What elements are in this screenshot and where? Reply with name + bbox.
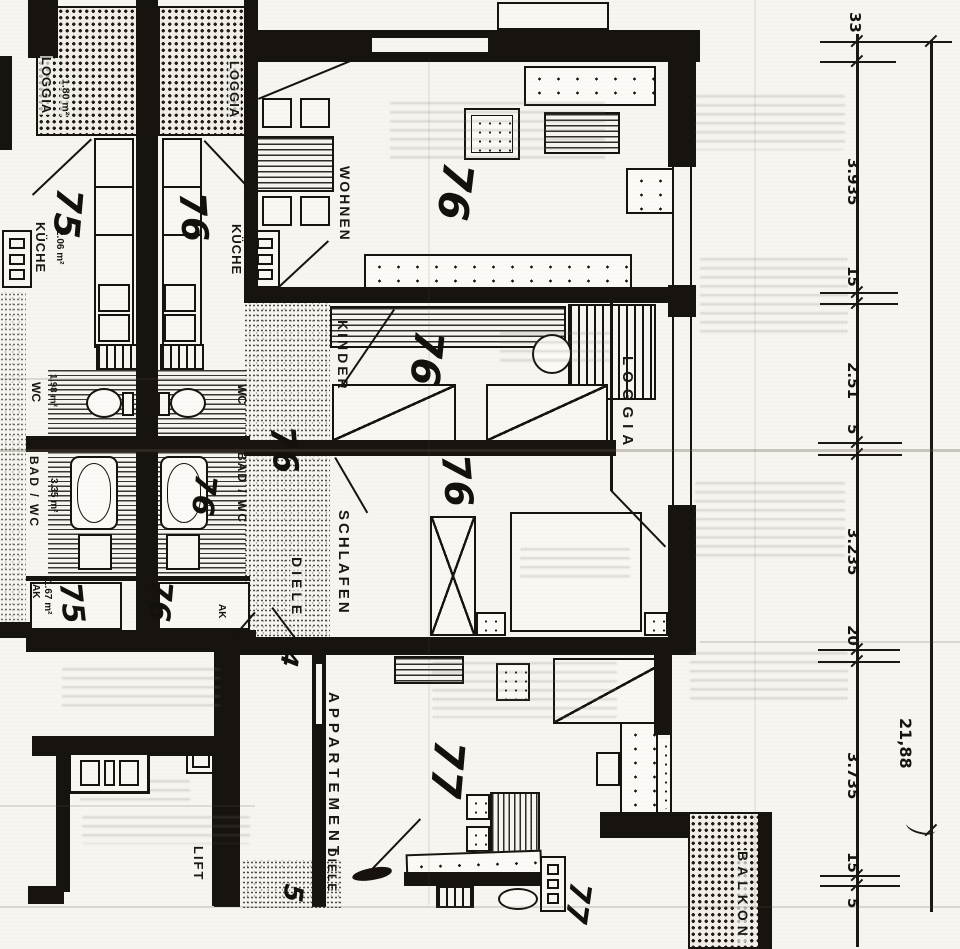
dim-label: 3.935 bbox=[844, 158, 862, 205]
window-icon bbox=[2, 230, 32, 288]
washbasin-icon bbox=[78, 534, 112, 570]
room-label-bad-left: BAD / WC bbox=[28, 456, 40, 528]
wall bbox=[244, 287, 672, 303]
exterior-ground-texture bbox=[0, 292, 26, 622]
area-label-bad-left: 3.35 m² bbox=[48, 478, 58, 512]
handwritten-unit-76: 76 bbox=[144, 579, 175, 623]
room-label-kinder: KINDER bbox=[336, 320, 350, 392]
dining-table-icon bbox=[256, 136, 334, 192]
wall bbox=[758, 812, 772, 949]
scan-crease bbox=[0, 449, 960, 452]
scan-crease bbox=[0, 805, 255, 807]
wall bbox=[0, 622, 30, 638]
wall bbox=[600, 812, 690, 838]
ghost-text-patch bbox=[695, 482, 845, 560]
handwritten-unit-76: 76 bbox=[174, 191, 210, 243]
handwritten-unit-76: 76 bbox=[188, 473, 219, 517]
dimension-tick bbox=[820, 875, 900, 877]
scan-streak bbox=[428, 60, 430, 905]
door-swing bbox=[272, 240, 329, 293]
floor-plan-scan: LOGGIA 1.80 m² LOGGIA KÜCHE 2.06 m² KÜCH… bbox=[0, 0, 960, 949]
toilet-tank bbox=[122, 392, 134, 416]
chair-icon bbox=[300, 196, 330, 226]
toilet-tank bbox=[158, 392, 170, 416]
wall bbox=[0, 56, 12, 150]
door-frame bbox=[316, 664, 322, 724]
counter-divider bbox=[96, 186, 132, 188]
room-label-lift: LIFT bbox=[192, 846, 205, 881]
room-label-loggia-left: LOGGIA bbox=[40, 56, 53, 115]
bathtub-icon bbox=[70, 456, 118, 530]
party-wall bbox=[136, 0, 158, 650]
dim-label: 15 bbox=[844, 266, 862, 287]
chair-icon bbox=[262, 98, 292, 128]
handwritten-unit-75: 75 bbox=[48, 187, 85, 240]
handwritten-unit-77: 77 bbox=[426, 738, 469, 800]
handwritten-unit-76: 76 bbox=[405, 328, 447, 387]
dim-label: 2.51 bbox=[844, 362, 862, 399]
handwritten-unit-76: 76 bbox=[433, 160, 478, 223]
dim-label: 15 bbox=[844, 852, 862, 873]
counter-divider bbox=[96, 234, 132, 236]
dim-label: 33 bbox=[846, 12, 864, 33]
dimension-tick bbox=[820, 303, 898, 305]
area-label-ak-left: 1.67 m² bbox=[42, 580, 52, 614]
dimension-tick bbox=[818, 442, 902, 444]
dimension-tick bbox=[818, 661, 900, 663]
sofa-icon bbox=[364, 254, 632, 290]
room-label-wc-left: WC bbox=[30, 382, 42, 402]
ghost-text-patch bbox=[390, 102, 605, 160]
ghost-text-patch bbox=[700, 258, 848, 338]
chair-icon bbox=[300, 98, 330, 128]
room-label-diele-unten: DIELE bbox=[326, 848, 338, 893]
washbasin-icon bbox=[166, 534, 200, 570]
room-label-wc-right: WC bbox=[236, 384, 248, 404]
chair-icon bbox=[466, 826, 490, 852]
exterior-wall-right bbox=[668, 505, 696, 640]
bed-icon bbox=[486, 384, 608, 442]
scan-crease bbox=[700, 641, 960, 643]
dimension-tick bbox=[818, 454, 902, 456]
ghost-text-patch bbox=[432, 662, 617, 718]
counter-divider bbox=[164, 186, 200, 188]
upper-structure bbox=[497, 2, 609, 30]
room-label-ak-left: AK bbox=[30, 584, 40, 598]
dimension-tick bbox=[820, 292, 898, 294]
kitchen-appliance bbox=[164, 314, 196, 342]
handwritten-measure-4: 4 bbox=[277, 648, 301, 668]
lift-wall bbox=[28, 886, 64, 904]
wall bbox=[26, 576, 250, 581]
room-label-wohnen: WOHNEN bbox=[338, 166, 352, 242]
chamfer-line bbox=[258, 60, 351, 100]
toilet-icon bbox=[170, 388, 206, 418]
room-label-ak-right: AK bbox=[216, 604, 226, 618]
room-label-kueche-right: KÜCHE bbox=[230, 224, 243, 275]
window-detail bbox=[658, 739, 670, 809]
kitchen-appliance bbox=[98, 284, 130, 312]
bed-icon bbox=[332, 384, 456, 442]
handwritten-unit-76: 76 bbox=[438, 453, 477, 509]
sink-unit bbox=[160, 344, 204, 370]
handwritten-unit-77: 77 bbox=[561, 880, 594, 925]
loggia-edge bbox=[610, 303, 613, 491]
sofa-icon bbox=[524, 66, 656, 106]
exterior-wall-right bbox=[668, 55, 696, 167]
room-label-appartement: APPARTEMENT bbox=[326, 692, 341, 860]
area-label-loggia-left: 1.80 m² bbox=[60, 78, 71, 116]
wall bbox=[654, 655, 672, 735]
wall bbox=[28, 0, 58, 58]
dimension-line-outer bbox=[930, 40, 933, 912]
scan-crease bbox=[0, 378, 252, 380]
dimension-tick bbox=[818, 649, 900, 651]
window-strip bbox=[372, 36, 488, 54]
door-swing bbox=[334, 457, 368, 513]
nightstand-icon bbox=[476, 612, 506, 636]
room-label-loggia-kinder: LOGGIA bbox=[620, 356, 635, 451]
side-table-icon bbox=[596, 752, 620, 786]
window-strip bbox=[672, 317, 692, 505]
kitchen-appliance bbox=[164, 284, 196, 312]
sink-unit bbox=[96, 344, 140, 370]
scan-crease bbox=[0, 906, 960, 908]
table-icon bbox=[490, 792, 540, 856]
dimension-tick bbox=[820, 885, 900, 887]
kitchen-counter-wall bbox=[404, 872, 542, 886]
room-label-balkon: BALKON bbox=[736, 850, 750, 942]
handwritten-unit-75: 75 bbox=[56, 581, 87, 625]
nightstand-icon bbox=[644, 612, 668, 636]
kitchen-appliance bbox=[98, 314, 130, 342]
elevator-icon bbox=[68, 752, 150, 794]
toilet-icon bbox=[86, 388, 122, 418]
chair-icon bbox=[262, 196, 292, 226]
armchair-icon bbox=[626, 168, 676, 214]
room-label-diele: DIELE bbox=[290, 556, 304, 619]
ghost-text-patch bbox=[520, 548, 630, 584]
ghost-text-patch bbox=[695, 95, 845, 150]
window-strip bbox=[672, 167, 692, 285]
wardrobe-icon bbox=[430, 516, 476, 636]
ghost-text-patch bbox=[82, 816, 250, 844]
dim-label: 3.235 bbox=[844, 528, 862, 575]
ghost-text-patch bbox=[500, 332, 610, 362]
scan-streak bbox=[754, 0, 756, 908]
stove-icon bbox=[436, 886, 474, 908]
exterior-wall-right bbox=[668, 285, 696, 317]
dim-label: 5 bbox=[844, 424, 862, 434]
dim-label-total: 21,88 bbox=[896, 718, 915, 769]
ghost-text-patch bbox=[690, 652, 848, 700]
handwritten-measure-5: 5 bbox=[279, 883, 304, 903]
ghost-text-patch bbox=[62, 668, 220, 708]
room-label-loggia-right: LOGGIA bbox=[228, 60, 241, 119]
room-label-bad-right: BAD / WC bbox=[236, 452, 248, 524]
dim-label: 3.735 bbox=[844, 752, 862, 799]
chair-icon bbox=[466, 794, 490, 820]
room-label-schlafen: SCHLAFEN bbox=[336, 510, 351, 616]
handwriting-mark bbox=[351, 865, 392, 882]
